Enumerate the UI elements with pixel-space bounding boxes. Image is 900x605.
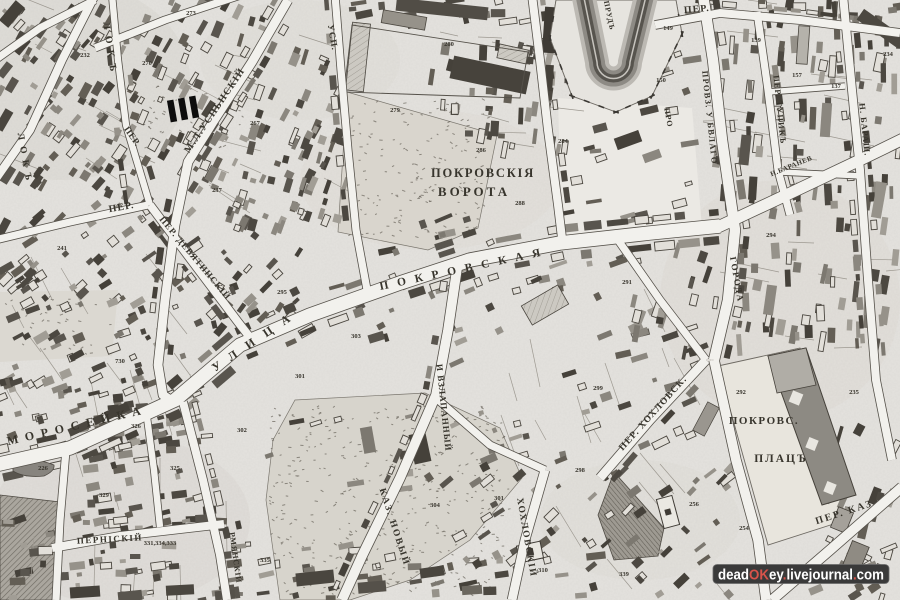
svg-text:241: 241 [57,245,67,252]
svg-text:270: 270 [142,60,152,67]
svg-text:254: 254 [739,525,750,532]
svg-text:291: 291 [622,279,632,286]
svg-text:280: 280 [444,41,454,48]
svg-text:273: 273 [186,10,197,17]
svg-text:310: 310 [538,567,548,574]
svg-text:256: 256 [689,501,700,508]
svg-text:237: 237 [212,187,223,194]
svg-text:284: 284 [558,138,569,145]
svg-text:303: 303 [351,333,362,340]
svg-text:302: 302 [237,427,247,434]
svg-text:267: 267 [250,120,261,127]
svg-text:ПОКРОВС.: ПОКРОВС. [729,415,799,427]
svg-text:326: 326 [131,423,142,430]
svg-text:137: 137 [831,83,842,90]
svg-text:150: 150 [656,77,666,84]
svg-text:331,334,333: 331,334,333 [144,540,177,547]
svg-text:149: 149 [663,25,674,32]
svg-text:ПЛАЦЪ: ПЛАЦЪ [754,453,808,465]
svg-text:301: 301 [494,495,504,502]
svg-text:325: 325 [170,465,181,472]
svg-text:ПЕР.: ПЕР. [683,3,710,16]
svg-text:279: 279 [390,107,401,114]
svg-text:339: 339 [619,571,630,578]
svg-text:295: 295 [277,289,288,296]
svg-text:304: 304 [430,502,441,509]
svg-text:329: 329 [99,492,110,499]
svg-text:226: 226 [38,465,49,472]
svg-text:294: 294 [766,232,777,239]
svg-text:286: 286 [476,147,487,154]
svg-text:292: 292 [736,389,746,396]
svg-text:298: 298 [575,467,586,474]
svg-text:301: 301 [295,373,305,380]
svg-text:288: 288 [515,200,526,207]
svg-text:ВОРОТА: ВОРОТА [438,184,510,199]
svg-text:157: 157 [792,72,803,79]
svg-text:deadOKey.livejournal.com: deadOKey.livejournal.com [718,568,884,584]
svg-text:299: 299 [593,385,604,392]
svg-text:139: 139 [751,37,762,44]
svg-text:232: 232 [80,52,90,59]
svg-text:335: 335 [260,557,271,564]
svg-text:234: 234 [883,51,894,58]
svg-text:ПОКРОВСКІЯ: ПОКРОВСКІЯ [431,166,535,180]
svg-text:235: 235 [849,389,860,396]
svg-text:730: 730 [115,358,125,365]
